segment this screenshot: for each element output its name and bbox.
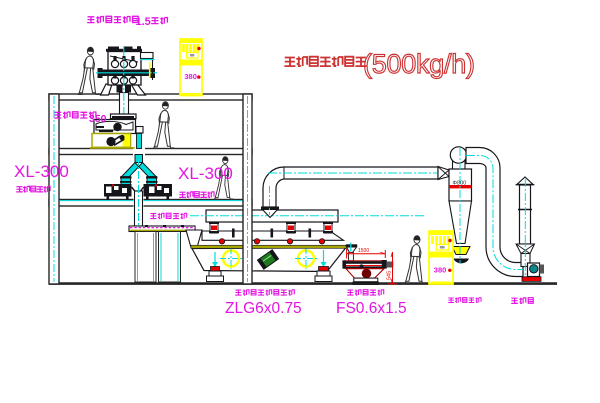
svg-text:XL-300: XL-300	[178, 164, 233, 183]
svg-text:350: 350	[89, 113, 107, 125]
svg-text:ZLG6x0.75: ZLG6x0.75	[225, 300, 302, 317]
svg-text:380: 380	[184, 72, 197, 81]
svg-text:FS0.6x1.5: FS0.6x1.5	[336, 300, 407, 317]
svg-text:380: 380	[434, 265, 447, 274]
svg-text:(500kg/h): (500kg/h)	[363, 49, 475, 79]
svg-text:Φ800: Φ800	[453, 181, 467, 187]
svg-text:1.5: 1.5	[136, 16, 151, 28]
svg-text:545: 545	[387, 271, 393, 280]
svg-text:XL-300: XL-300	[14, 162, 69, 181]
svg-text:1500: 1500	[358, 248, 369, 254]
